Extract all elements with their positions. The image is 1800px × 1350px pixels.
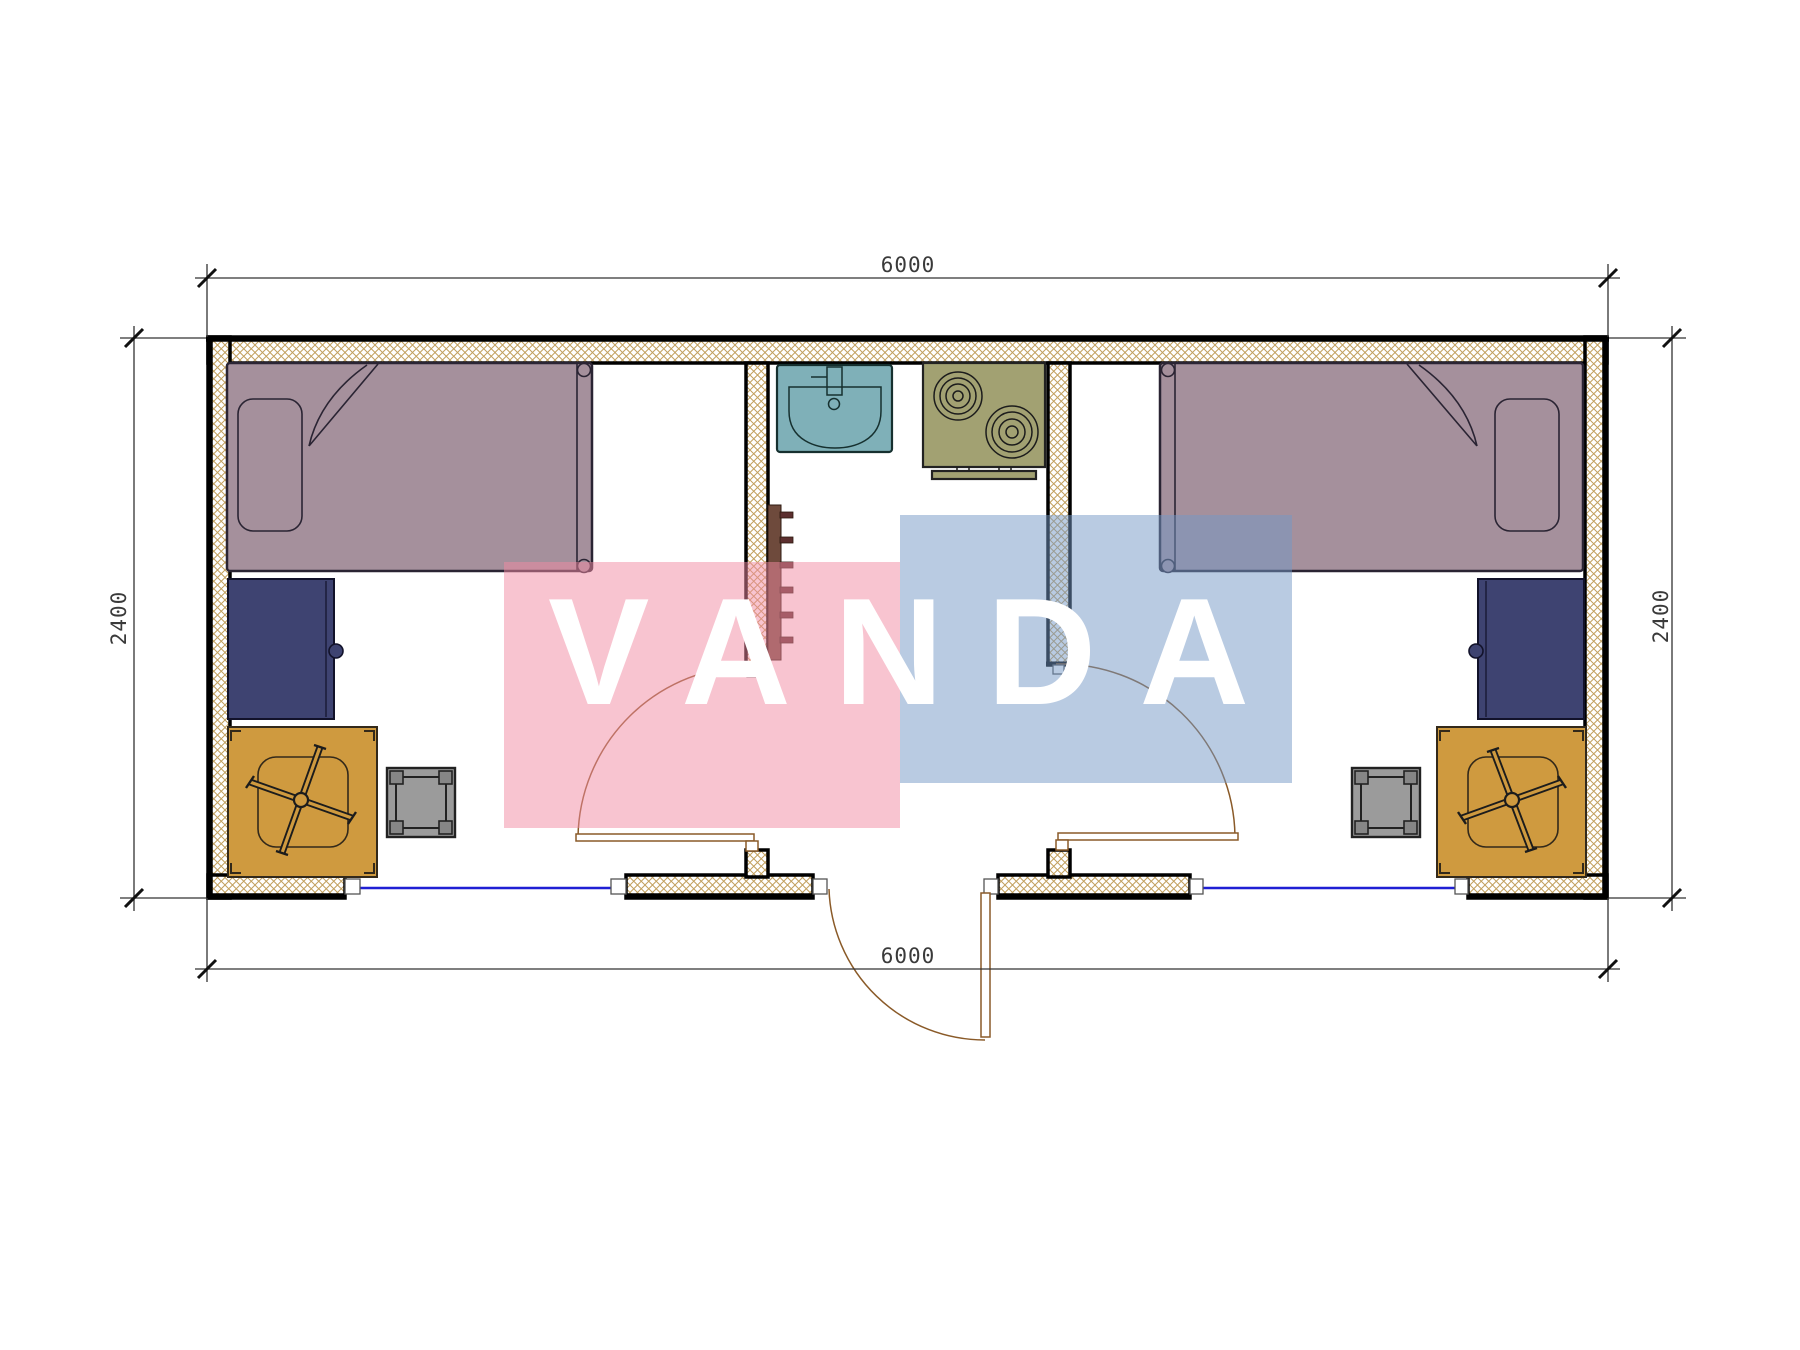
bottom-wall-stub-left xyxy=(746,850,768,877)
window-jamb xyxy=(1455,879,1468,894)
sink-unit xyxy=(777,365,892,452)
left-dimension-line xyxy=(120,326,206,911)
left-door-hinge xyxy=(746,841,758,851)
right-chair-hub xyxy=(1505,793,1519,807)
right-door-leaf xyxy=(1058,833,1238,840)
sink xyxy=(777,365,892,452)
left-desk xyxy=(228,579,334,719)
right-dimension-label: 2400 xyxy=(1649,589,1673,644)
top-dimension-label: 6000 xyxy=(881,253,936,277)
right-desk-knob xyxy=(1469,644,1483,658)
left-bed-pillow xyxy=(238,399,302,531)
bottom-dimension-line xyxy=(195,898,1620,982)
left-bed-post-top xyxy=(578,364,591,377)
right-bed-post-top xyxy=(1162,364,1175,377)
left-stool xyxy=(387,768,455,837)
floor-plan-canvas: 6000 6000 2400 2400 VANDA xyxy=(0,0,1800,1350)
stove-unit xyxy=(923,363,1045,479)
left-door-leaf xyxy=(576,834,754,841)
left-desk-knob xyxy=(329,644,343,658)
bottom-wall-stub-right xyxy=(1048,850,1070,877)
bottom-dimension-label: 6000 xyxy=(881,944,936,968)
right-desk xyxy=(1478,579,1584,719)
left-swivel-chair xyxy=(228,727,377,877)
left-chair-hub xyxy=(294,793,308,807)
right-dimension-line xyxy=(1609,326,1686,911)
right-bed-pillow xyxy=(1495,399,1559,531)
stove-control-bar xyxy=(932,471,1036,479)
windows xyxy=(345,879,1468,894)
watermark-text: VANDA xyxy=(548,576,1308,736)
window-jamb xyxy=(345,879,360,894)
right-swivel-chair xyxy=(1437,727,1586,877)
left-dimension-label: 2400 xyxy=(107,591,131,646)
window-jamb xyxy=(611,879,626,894)
window-jamb xyxy=(1190,879,1203,894)
entry-door-leaf xyxy=(981,893,990,1037)
right-door-hinge xyxy=(1056,840,1068,850)
right-stool xyxy=(1352,768,1420,837)
